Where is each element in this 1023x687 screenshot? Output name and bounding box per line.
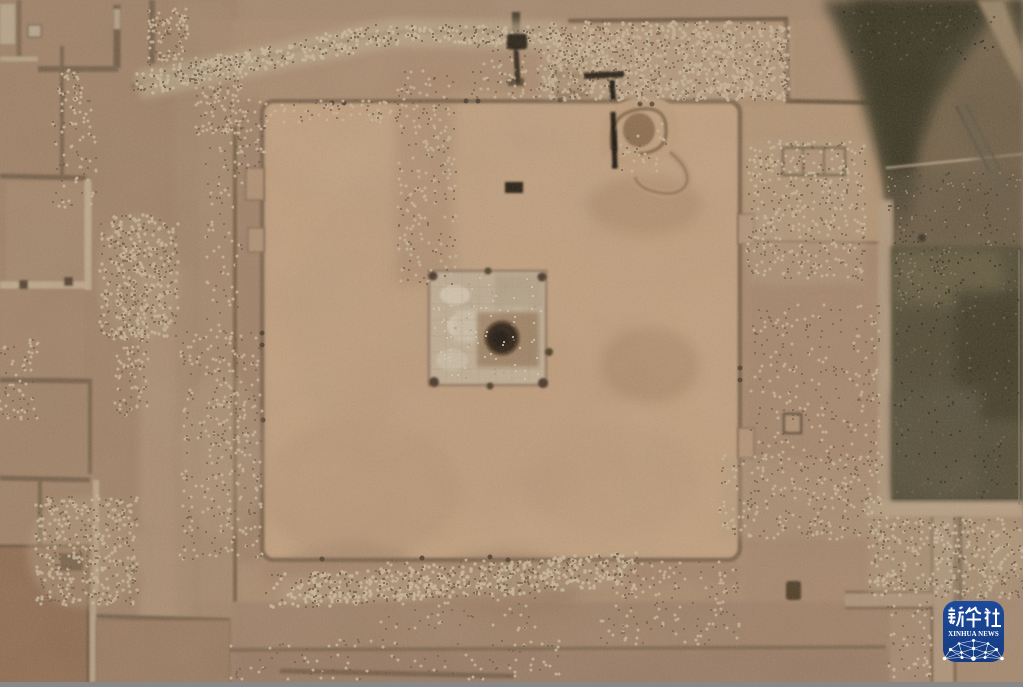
- svg-text:XINHUA NEWS: XINHUA NEWS: [948, 631, 999, 638]
